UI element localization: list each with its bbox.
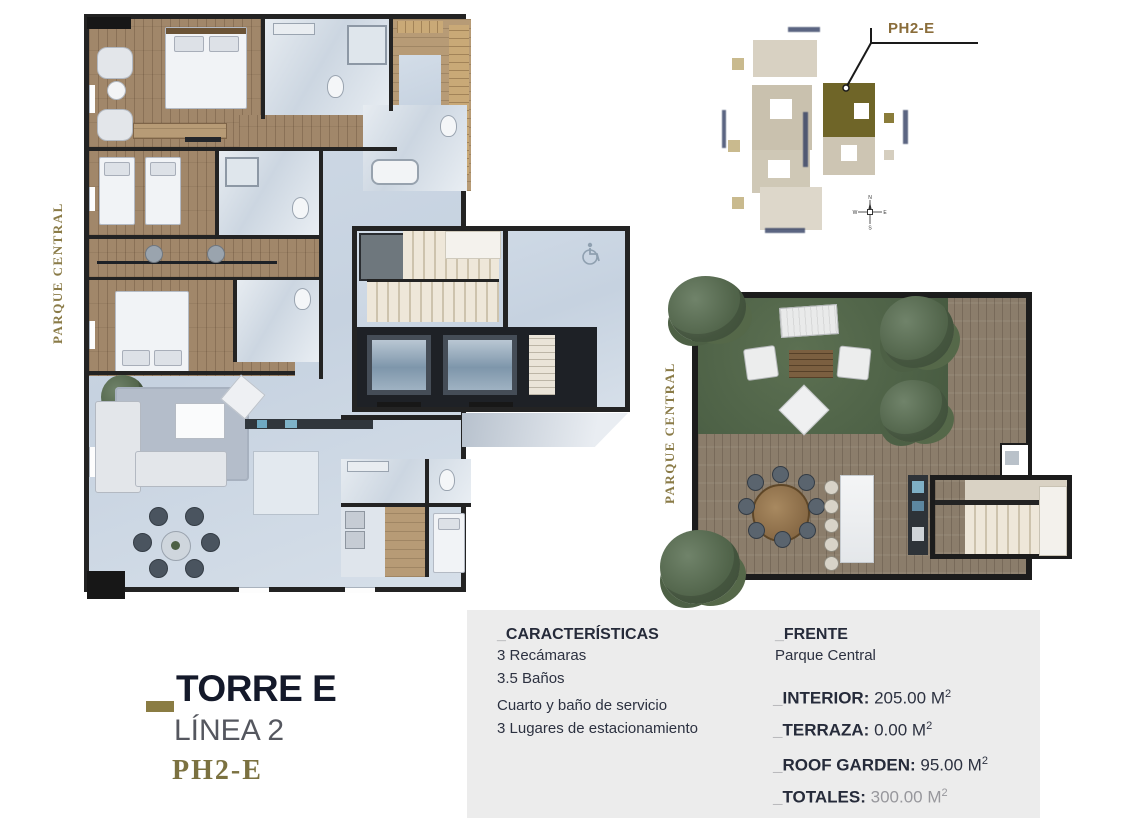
bar-island [840, 475, 874, 563]
svg-text:E: E [883, 210, 887, 216]
bar-stool [824, 499, 839, 514]
frente-title: _FRENTE [775, 626, 848, 644]
stair-landing [445, 231, 501, 259]
prefix: _ [497, 626, 506, 643]
bathroom-1-floor [265, 19, 393, 115]
grill-counter [908, 475, 928, 555]
dining-table [161, 531, 191, 561]
toilet-icon [327, 75, 344, 98]
window [89, 447, 95, 477]
extension-deck [935, 480, 965, 554]
roof-chair [774, 531, 791, 548]
dining-chair [149, 507, 168, 526]
compass-rose-icon: N E S W [852, 194, 888, 230]
core-block [352, 226, 630, 412]
elevator-bank [357, 327, 597, 407]
bathroom-4-floor [237, 280, 319, 362]
bathtub [371, 159, 419, 185]
plan-sheet: PARQUE CENTRAL [0, 0, 1146, 821]
unit-label: PH2-E [888, 20, 935, 37]
single-bed-1 [99, 157, 135, 225]
stair-landing [1039, 486, 1067, 556]
wall-pillar [87, 17, 131, 29]
area-row-roof-garden: _ROOF GARDEN: 95.00 M2 [773, 755, 988, 776]
leader-line [700, 0, 1000, 250]
svg-text:W: W [853, 210, 858, 216]
door-jamb [469, 402, 513, 407]
window [345, 587, 375, 593]
feature-item: 3 Lugares de estacionamiento [497, 720, 698, 737]
site-map: PH2-E N E S W [700, 0, 1000, 250]
feature-item: Cuarto y baño de servicio [497, 697, 667, 714]
floor-plan-roof-garden [660, 260, 1080, 612]
roof-access-door [1000, 443, 1030, 477]
sun-lounger [779, 304, 839, 338]
tower-title: TORRE E [176, 668, 336, 710]
roof-chair [799, 522, 816, 539]
unit-name: PH2-E [172, 755, 263, 787]
study-floor [89, 239, 319, 277]
coffee-table [175, 403, 225, 439]
window [239, 587, 269, 593]
roof-chair [798, 474, 815, 491]
elevator-2 [443, 335, 517, 395]
accent-dash [146, 701, 174, 712]
roof-chair [747, 474, 764, 491]
armchair-2 [97, 109, 133, 141]
roof-stairs-extension [930, 475, 1072, 559]
dining-chair [185, 507, 204, 526]
area-row-totales: _TOTALES: 300.00 M2 [773, 787, 948, 808]
area-row-interior: _INTERIOR: 205.00 M2 [773, 688, 951, 709]
floor-plan-main [78, 10, 648, 592]
bar-stool [824, 537, 839, 552]
bar-stool [824, 480, 839, 495]
tree [660, 530, 740, 604]
window [89, 321, 95, 349]
svg-text:S: S [868, 226, 872, 231]
lounge-chair [836, 345, 871, 380]
lounge-chair [743, 345, 779, 381]
pallet-table [789, 350, 833, 378]
kitchen-island [253, 451, 319, 515]
shower [347, 25, 387, 65]
toilet-icon [440, 115, 457, 137]
service-bed [433, 513, 465, 573]
frente-value: Parque Central [775, 647, 876, 664]
side-table [107, 81, 126, 100]
line-subtitle: LÍNEA 2 [174, 714, 284, 748]
bathroom-3-floor [219, 151, 319, 235]
park-central-label-left: PARQUE CENTRAL [50, 192, 70, 354]
roof-chair [772, 466, 789, 483]
info-panel: _CARACTERÍSTICAS 3 Recámaras 3.5 Baños C… [467, 610, 1040, 818]
bar-stool [824, 556, 839, 571]
hall-wood-floor [239, 115, 367, 151]
single-bed-2 [145, 157, 181, 225]
staircase-lower [367, 282, 499, 322]
desk-chair [207, 245, 225, 263]
service-hall-floor [385, 507, 425, 577]
dining-chair [185, 559, 204, 578]
brand-block: TORRE E LÍNEA 2 PH2-E [146, 668, 406, 798]
dining-chair [149, 559, 168, 578]
wheelchair-icon [579, 241, 605, 267]
door-jamb [377, 402, 421, 407]
service-bathroom-floor [341, 459, 471, 503]
tv-console [185, 137, 221, 142]
storage-room [359, 233, 405, 281]
window [89, 187, 95, 211]
area-row-terraza: _TERRAZA: 0.00 M2 [773, 720, 932, 741]
wall-pillar [87, 571, 125, 599]
exterior-stairs [965, 505, 1039, 554]
shadow-area [462, 413, 628, 447]
dining-chair [133, 533, 152, 552]
closet-shelves-top [397, 21, 443, 33]
toilet-icon [292, 197, 309, 219]
sofa-front [135, 451, 227, 487]
bar-stool [824, 518, 839, 533]
prefix: _ [775, 626, 784, 643]
feature-item: 3.5 Baños [497, 670, 565, 687]
roof-chair [738, 498, 755, 515]
window [89, 85, 95, 113]
shower [225, 157, 259, 187]
kitchen-counter [245, 419, 373, 429]
roof-chair [748, 522, 765, 539]
dining-chair [201, 533, 220, 552]
armchair-1 [97, 47, 133, 79]
svg-text:N: N [868, 195, 872, 201]
roof-chair [808, 498, 825, 515]
toilet-icon [294, 288, 311, 310]
feature-item: 3 Recámaras [497, 647, 586, 664]
bed-3 [115, 291, 189, 373]
master-bed [165, 27, 247, 109]
sink-counter [273, 23, 315, 35]
elevator-1 [367, 335, 431, 395]
shaft-vestibule [529, 335, 555, 395]
laundry-floor [341, 507, 385, 577]
service-sink [347, 461, 389, 472]
study-desk [97, 261, 277, 264]
caracteristicas-title: _CARACTERÍSTICAS [497, 626, 659, 644]
desk-chair [145, 245, 163, 263]
toilet-icon [439, 469, 455, 491]
